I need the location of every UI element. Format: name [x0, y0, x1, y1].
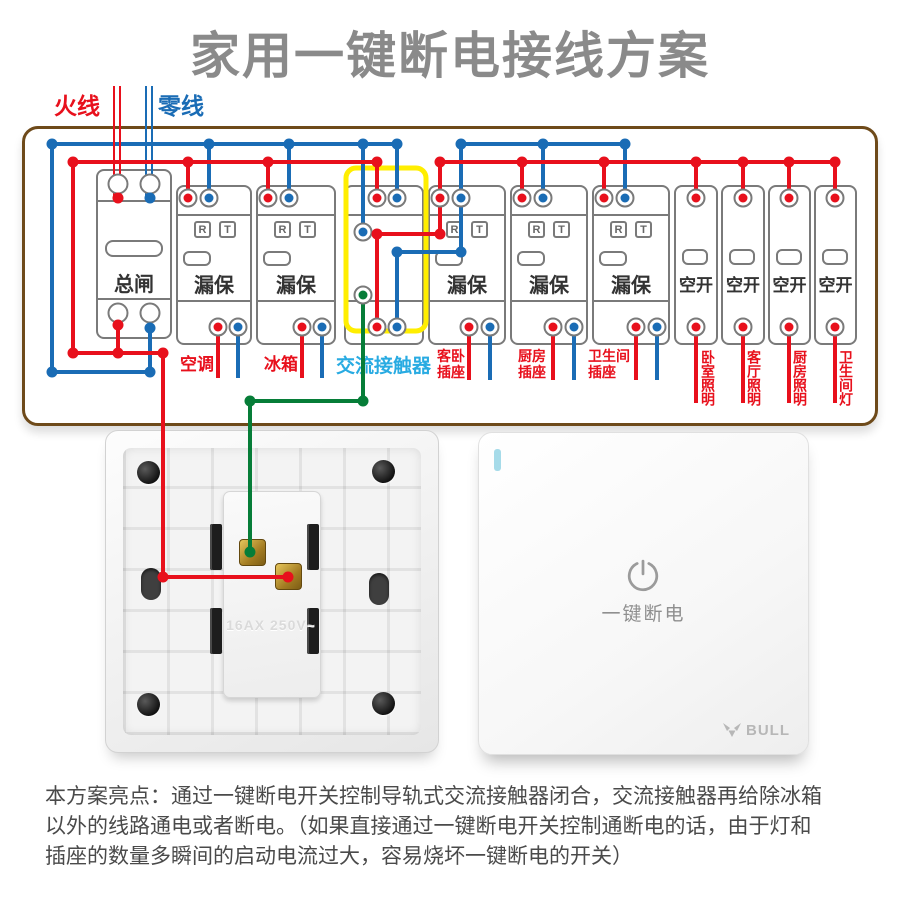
- divider: [257, 300, 335, 302]
- footnote-line-2: 以外的线路通电或者断电。（如果直接通过一键断电开关控制通断电的话，由于灯和: [45, 812, 865, 842]
- mounting-hole: [369, 573, 389, 605]
- circuit-label-bath-socket: 卫生间插座: [588, 348, 630, 380]
- test-button[interactable]: T: [471, 221, 488, 238]
- brand-text: BULL: [746, 722, 790, 739]
- device-mcb-bath-light: 空开: [814, 185, 857, 345]
- wiring-diagram-page: 家用一键断电接线方案 火线 零线 总闸RT漏保RT漏保RT漏保RT漏保RT漏保空…: [0, 0, 900, 900]
- divider: [345, 214, 423, 216]
- switch-mechanism: [223, 491, 321, 698]
- screw-icon: [372, 460, 395, 483]
- reset-button[interactable]: R: [610, 221, 627, 238]
- handle-rcbo-kitchen-socket[interactable]: [517, 251, 545, 266]
- device-label: 漏保: [512, 269, 586, 298]
- footnote-line-3: 插座的数量多瞬间的启动电流过大，容易烧坏一键断电的开关）: [45, 842, 865, 872]
- handle-mcb-bath-light[interactable]: [822, 249, 848, 265]
- device-label: 空开: [676, 271, 716, 296]
- handle-rcbo-bath-socket[interactable]: [599, 251, 627, 266]
- divider: [511, 214, 587, 216]
- divider: [511, 300, 587, 302]
- test-button[interactable]: T: [553, 221, 570, 238]
- handle-mcb-bedroom-light[interactable]: [682, 249, 708, 265]
- handle-main-breaker[interactable]: [105, 240, 163, 257]
- device-label: 空开: [723, 271, 763, 296]
- clip-slot: [210, 524, 222, 570]
- power-icon: [625, 558, 661, 594]
- divider: [345, 300, 423, 302]
- handle-rcbo-aircon[interactable]: [183, 251, 211, 266]
- circuit-label-fridge: 冰箱: [264, 350, 298, 375]
- circuit-label-kitchen-socket: 厨房插座: [518, 348, 546, 380]
- device-label: 总闸: [98, 268, 170, 297]
- screw-icon: [137, 461, 160, 484]
- rating-text: 16AX 250V~: [223, 617, 319, 633]
- switch-label: 一键断电: [479, 599, 808, 626]
- device-rcbo-bath-socket: RT漏保: [592, 185, 670, 345]
- reset-button[interactable]: R: [274, 221, 291, 238]
- device-label: 漏保: [430, 269, 504, 298]
- handle-mcb-living-light[interactable]: [729, 249, 755, 265]
- one-key-switch-panel[interactable]: 一键断电 BULL: [478, 432, 809, 755]
- divider: [429, 300, 505, 302]
- clip-slot: [210, 608, 222, 654]
- handle-rcbo-fridge[interactable]: [263, 251, 291, 266]
- device-label: 漏保: [258, 269, 334, 298]
- terminal-screw-l2: [275, 563, 302, 590]
- device-main-breaker: 总闸: [96, 169, 172, 339]
- device-mcb-bedroom-light: 空开: [674, 185, 718, 345]
- circuit-label-kitchen-light: 厨房照明: [792, 350, 807, 406]
- terminal-screw-l1: [239, 539, 266, 566]
- device-rcbo-fridge: RT漏保: [256, 185, 336, 345]
- live-wire-label: 火线: [54, 87, 100, 121]
- device-label: 漏保: [178, 269, 250, 298]
- device-rcbo-aircon: RT漏保: [176, 185, 252, 345]
- switch-back-panel: 16AX 250V~: [105, 430, 439, 753]
- device-mcb-kitchen-light: 空开: [768, 185, 811, 345]
- circuit-label-aircon: 空调: [180, 350, 214, 375]
- screw-icon: [137, 693, 160, 716]
- screw-icon: [372, 692, 395, 715]
- page-title: 家用一键断电接线方案: [0, 16, 900, 88]
- indicator-light: [494, 449, 501, 471]
- test-button[interactable]: T: [635, 221, 652, 238]
- device-ac-contactor: [344, 185, 424, 345]
- reset-button[interactable]: R: [528, 221, 545, 238]
- device-label: 空开: [770, 271, 809, 296]
- divider: [257, 214, 335, 216]
- device-mcb-living-light: 空开: [721, 185, 765, 345]
- handle-rcbo-guest-socket[interactable]: [435, 251, 463, 266]
- circuit-label-bedroom-light: 卧室照明: [700, 350, 715, 406]
- test-button[interactable]: T: [219, 221, 236, 238]
- device-rcbo-guest-socket: RT漏保: [428, 185, 506, 345]
- footnote: 本方案亮点：通过一键断电开关控制导轨式交流接触器闭合，交流接触器再给除冰箱 以外…: [45, 782, 865, 872]
- circuit-label-bath-light: 卫生间灯: [838, 350, 853, 406]
- divider: [593, 300, 669, 302]
- divider: [177, 214, 251, 216]
- neutral-wire-label: 零线: [158, 87, 204, 121]
- footnote-line-1: 本方案亮点：通过一键断电开关控制导轨式交流接触器闭合，交流接触器再给除冰箱: [45, 782, 865, 812]
- handle-mcb-kitchen-light[interactable]: [776, 249, 802, 265]
- device-rcbo-kitchen-socket: RT漏保: [510, 185, 588, 345]
- circuit-label-living-light: 客厅照明: [746, 350, 761, 406]
- brand-logo: BULL: [722, 722, 790, 739]
- device-label: 空开: [816, 271, 855, 296]
- device-label: 漏保: [594, 269, 668, 298]
- bull-icon: [722, 722, 742, 739]
- divider: [97, 298, 171, 300]
- clip-slot: [307, 524, 319, 570]
- divider: [429, 214, 505, 216]
- divider: [177, 300, 251, 302]
- reset-button[interactable]: R: [446, 221, 463, 238]
- divider: [97, 200, 171, 202]
- circuit-label-guest-socket: 客卧插座: [437, 348, 465, 380]
- divider: [593, 214, 669, 216]
- circuit-label-ac-contactor: 交流接触器: [336, 351, 431, 378]
- test-button[interactable]: T: [299, 221, 316, 238]
- mounting-hole: [141, 568, 161, 600]
- reset-button[interactable]: R: [194, 221, 211, 238]
